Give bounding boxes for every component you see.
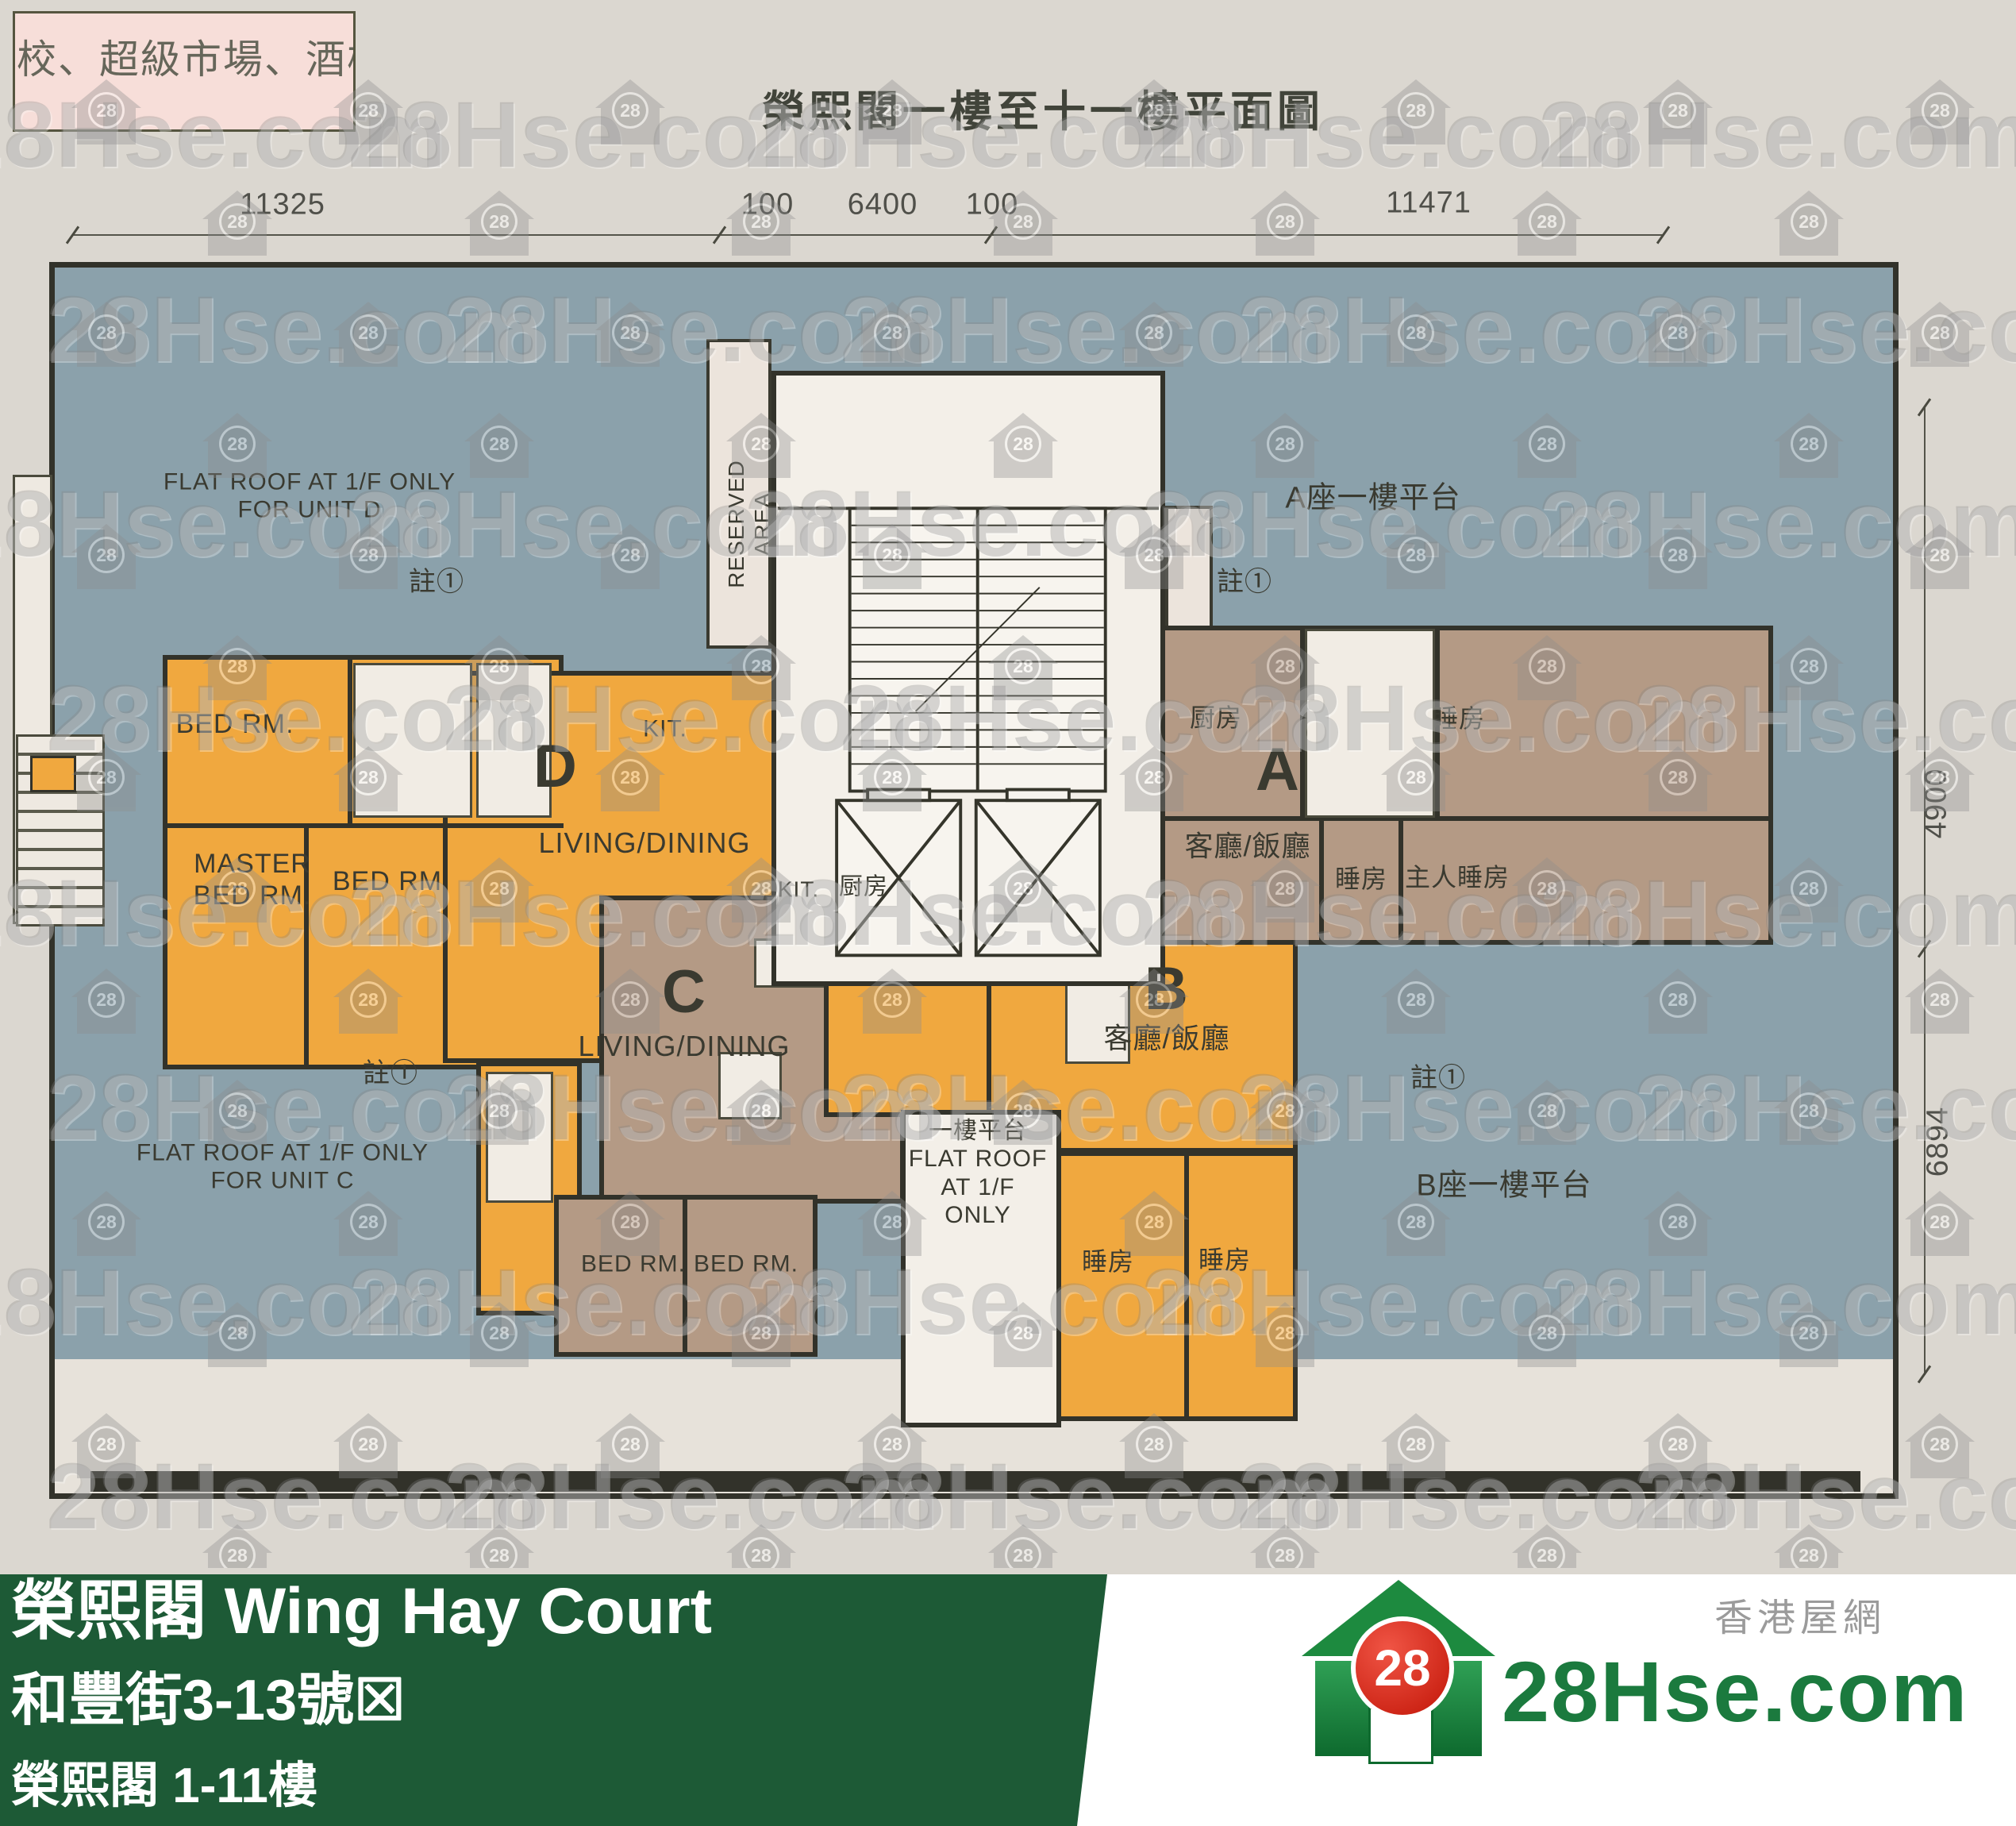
unit-d-living-label: LIVING/DINING (538, 826, 750, 860)
unit-d-master-bedroom-label: MASTER BED RM. (194, 848, 312, 911)
logo-28-badge: 28 (1351, 1616, 1454, 1720)
unit-d-letter: D (533, 731, 578, 803)
unit-a-letter: A (1256, 734, 1300, 806)
note-3-label: 註① (363, 1057, 418, 1089)
flat-roof-unit-c-label: FLAT ROOF AT 1/F ONLY FOR UNIT C (137, 1139, 429, 1196)
unit-c-bedroom2-label: BED RM. (694, 1250, 798, 1277)
unit-d-bedroom-label: BED RM. (176, 708, 294, 740)
logo-house-icon: 28 (1302, 1580, 1495, 1759)
note-2-label: 註① (1217, 566, 1272, 598)
unit-b-bedroom2-label: 睡房 (1198, 1246, 1251, 1276)
unit-d-kitchen-label: KIT. (643, 715, 687, 742)
unit-d-bedroom2-label: BED RM (333, 865, 442, 897)
unit-a-kitchen-label: 厨房 (1190, 703, 1242, 734)
unit-c-living-label: LIVING/DINING (578, 1030, 790, 1063)
28hse-logo[interactable]: 28 28Hse.com 香港屋網 (1302, 1580, 1937, 1770)
unit-c-kitchen-label: KIT. (778, 876, 819, 902)
unit-a-living-label: 客廳/飯廳 (1184, 830, 1310, 863)
terrace-b-label: B座一樓平台 (1416, 1169, 1591, 1204)
building-name: 榮熙閣 Wing Hay Court (11, 1558, 712, 1652)
center-terrace-label: 一樓平台 FLAT ROOF AT 1/F ONLY (909, 1117, 1048, 1230)
note-4-label: 註① (1410, 1062, 1466, 1094)
unit-a-master-bedroom-label: 主人睡房 (1405, 863, 1510, 893)
logo-tagline: 香港屋網 (1714, 1586, 1886, 1642)
unit-c-bedroom1-label: BED RM. (581, 1250, 686, 1277)
unit-b-living-label: 客廳/飯廳 (1103, 1022, 1229, 1055)
unit-c-letter: C (662, 957, 706, 1028)
unit-b-letter: B (1145, 953, 1189, 1025)
unit-b-bedroom1-label: 睡房 (1082, 1247, 1134, 1277)
unit-a-bedroom2-label: 睡房 (1335, 865, 1387, 895)
building-floors: 榮熙閣 1-11樓 (11, 1745, 317, 1816)
unit-b-kitchen-label: 厨房 (839, 873, 888, 900)
logo-name: 28Hse.com (1502, 1642, 1968, 1741)
reserved-area-label: RESERVED AREA (723, 456, 775, 591)
terrace-a-label: A座一樓平台 (1285, 481, 1460, 517)
unit-a-bedroom1-label: 睡房 (1433, 704, 1485, 734)
note-1-label: 註① (409, 566, 464, 598)
flat-roof-unit-d-label: FLAT ROOF AT 1/F ONLY FOR UNIT D (164, 468, 456, 525)
building-address: 和豐街3-13號☒ (11, 1653, 406, 1736)
